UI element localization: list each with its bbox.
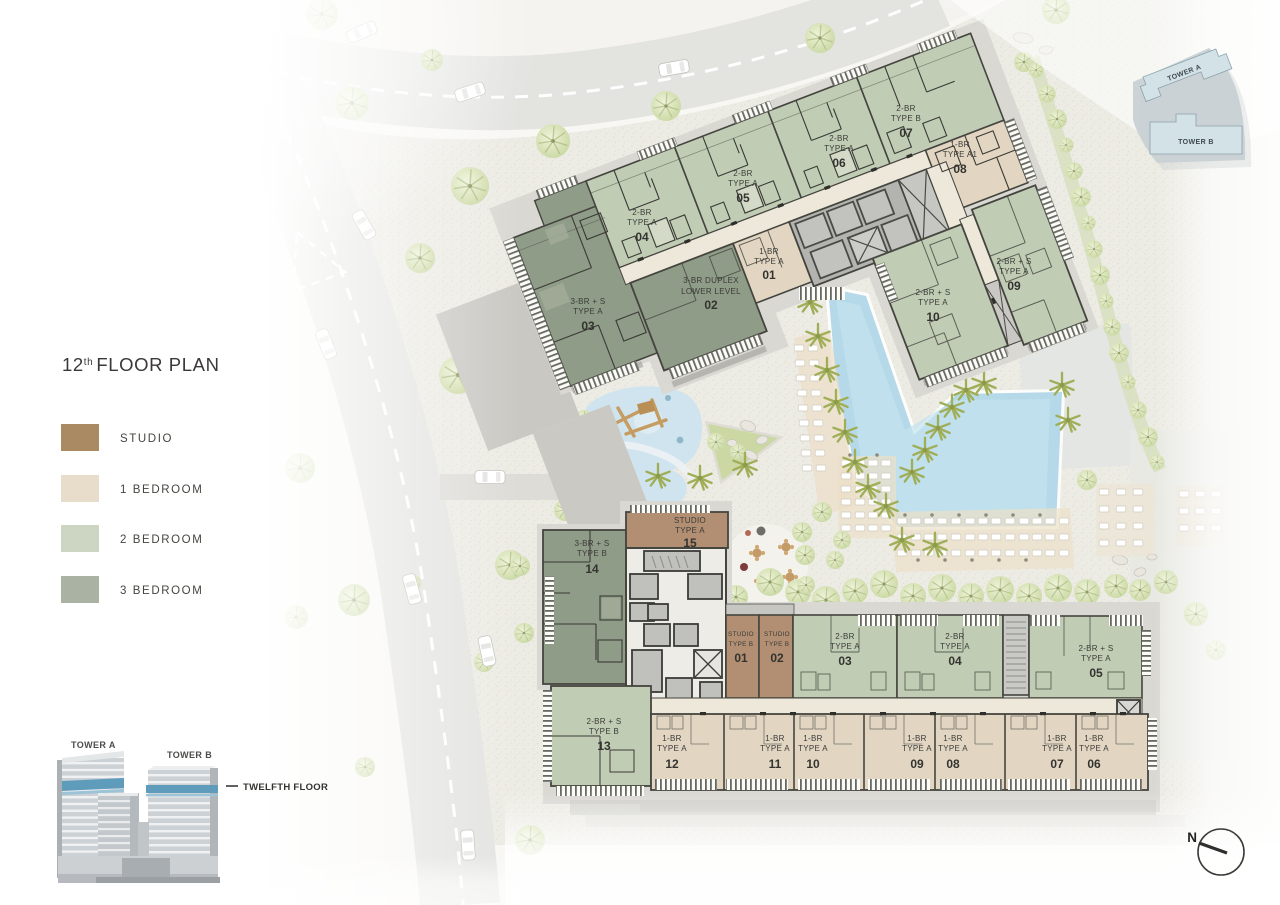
- svg-text:3 BEDROOM: 3 BEDROOM: [120, 585, 203, 597]
- svg-text:02: 02: [704, 298, 718, 312]
- svg-text:TYPE A: TYPE A: [1081, 654, 1111, 663]
- svg-text:01: 01: [734, 651, 748, 665]
- svg-text:TYPE A: TYPE A: [940, 642, 970, 651]
- svg-text:2-BR: 2-BR: [896, 104, 915, 113]
- svg-text:STUDIO: STUDIO: [674, 516, 706, 525]
- svg-text:04: 04: [948, 654, 962, 668]
- svg-text:2 BEDROOM: 2 BEDROOM: [120, 534, 203, 546]
- svg-text:15: 15: [683, 536, 697, 550]
- svg-text:1-BR: 1-BR: [907, 734, 926, 743]
- svg-text:TYPE B: TYPE B: [729, 641, 754, 648]
- svg-text:TYPE A: TYPE A: [728, 179, 758, 188]
- svg-text:13: 13: [597, 739, 611, 753]
- svg-text:06: 06: [832, 156, 846, 170]
- svg-text:TYPE B: TYPE B: [891, 114, 921, 123]
- svg-text:TOWER A: TOWER A: [71, 740, 116, 750]
- svg-text:07: 07: [1050, 757, 1064, 771]
- svg-text:02: 02: [770, 651, 784, 665]
- svg-text:TYPE A: TYPE A: [824, 144, 854, 153]
- svg-text:1-BR: 1-BR: [803, 734, 822, 743]
- svg-text:10: 10: [926, 310, 940, 324]
- svg-text:TYPE B: TYPE B: [765, 641, 790, 648]
- svg-text:03: 03: [838, 654, 852, 668]
- svg-text:09: 09: [910, 757, 924, 771]
- svg-text:3-BR + S: 3-BR + S: [574, 539, 609, 548]
- svg-text:05: 05: [1089, 666, 1103, 680]
- svg-text:1 BEDROOM: 1 BEDROOM: [120, 484, 203, 496]
- svg-text:N: N: [1187, 830, 1197, 845]
- svg-text:TYPE A: TYPE A: [675, 526, 705, 535]
- svg-text:TYPE A: TYPE A: [938, 744, 968, 753]
- svg-text:2-BR: 2-BR: [733, 169, 752, 178]
- svg-text:TYPE A: TYPE A: [657, 744, 687, 753]
- svg-text:TYPE B: TYPE B: [577, 549, 607, 558]
- svg-text:2-BR: 2-BR: [835, 632, 854, 641]
- svg-text:3-BR + S: 3-BR + S: [570, 297, 605, 306]
- svg-text:TYPE A: TYPE A: [1079, 744, 1109, 753]
- svg-text:2-BR + S: 2-BR + S: [1078, 644, 1113, 653]
- svg-text:10: 10: [806, 757, 820, 771]
- svg-text:STUDIO: STUDIO: [764, 631, 790, 638]
- svg-text:TOWER B: TOWER B: [1178, 139, 1214, 146]
- svg-text:2-BR: 2-BR: [945, 632, 964, 641]
- svg-text:1-BR: 1-BR: [1047, 734, 1066, 743]
- svg-text:TYPE A: TYPE A: [918, 298, 948, 307]
- svg-text:2-BR: 2-BR: [632, 208, 651, 217]
- svg-text:TYPE A: TYPE A: [760, 744, 790, 753]
- svg-text:STUDIO: STUDIO: [120, 433, 173, 445]
- svg-text:2-BR: 2-BR: [829, 134, 848, 143]
- svg-text:07: 07: [899, 126, 913, 140]
- svg-text:TYPE A: TYPE A: [573, 307, 603, 316]
- svg-text:2-BR + S: 2-BR + S: [915, 288, 950, 297]
- svg-text:3-BR DUPLEX: 3-BR DUPLEX: [683, 276, 739, 285]
- svg-text:1-BR: 1-BR: [759, 247, 778, 256]
- svg-text:1-BR: 1-BR: [1084, 734, 1103, 743]
- svg-text:TOWER B: TOWER B: [167, 750, 212, 760]
- svg-text:1-BR: 1-BR: [765, 734, 784, 743]
- svg-text:12: 12: [665, 757, 679, 771]
- svg-text:TYPE A: TYPE A: [627, 218, 657, 227]
- svg-text:TYPE A: TYPE A: [754, 257, 784, 266]
- svg-text:2-BR + S: 2-BR + S: [996, 257, 1031, 266]
- svg-text:01: 01: [762, 268, 776, 282]
- svg-text:TYPE A: TYPE A: [1042, 744, 1072, 753]
- svg-text:05: 05: [736, 191, 750, 205]
- svg-text:1-BR: 1-BR: [662, 734, 681, 743]
- svg-text:TYPE B: TYPE B: [589, 727, 619, 736]
- svg-text:STUDIO: STUDIO: [728, 631, 754, 638]
- svg-text:08: 08: [946, 757, 960, 771]
- svg-text:04: 04: [635, 230, 649, 244]
- svg-text:1-BR: 1-BR: [950, 140, 969, 149]
- svg-text:1-BR: 1-BR: [943, 734, 962, 743]
- svg-text:TYPE A: TYPE A: [798, 744, 828, 753]
- svg-text:03: 03: [581, 319, 595, 333]
- svg-text:09: 09: [1007, 279, 1021, 293]
- svg-text:TYPE A: TYPE A: [830, 642, 860, 651]
- svg-text:2-BR + S: 2-BR + S: [586, 717, 621, 726]
- svg-text:TWELFTH FLOOR: TWELFTH FLOOR: [243, 782, 328, 793]
- svg-text:06: 06: [1087, 757, 1101, 771]
- svg-text:TYPE A: TYPE A: [902, 744, 932, 753]
- svg-text:11: 11: [769, 757, 782, 771]
- svg-text:LOWER LEVEL: LOWER LEVEL: [681, 287, 741, 296]
- svg-text:TYPE A: TYPE A: [999, 267, 1029, 276]
- svg-text:08: 08: [953, 162, 967, 176]
- svg-text:14: 14: [585, 562, 599, 576]
- svg-text:TYPE A1: TYPE A1: [943, 150, 978, 159]
